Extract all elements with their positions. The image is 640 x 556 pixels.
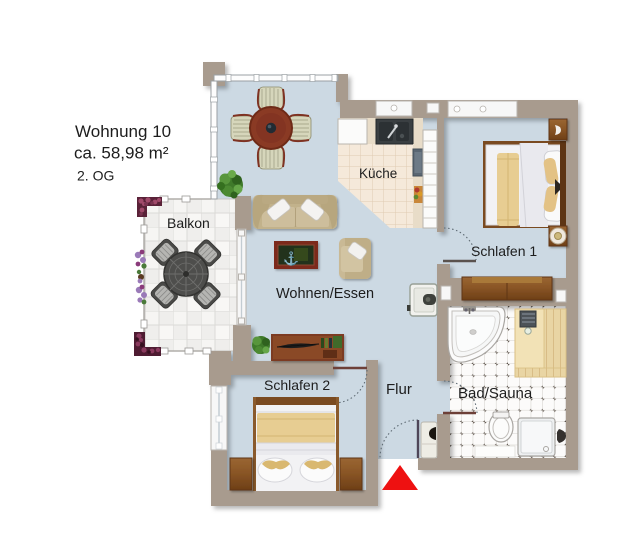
svg-text:Küche: Küche [359,166,397,181]
svg-text:Wohnung 10: Wohnung 10 [75,122,171,141]
svg-text:Schlafen 1: Schlafen 1 [471,243,537,259]
svg-text:ca. 58,98 m²: ca. 58,98 m² [74,144,169,163]
svg-text:2. OG: 2. OG [77,168,114,184]
svg-text:Wohnen/Essen: Wohnen/Essen [276,286,374,302]
svg-text:Balkon: Balkon [167,215,210,231]
svg-text:Schlafen 2: Schlafen 2 [264,377,330,393]
svg-text:Bad/Sauna: Bad/Sauna [458,385,533,402]
svg-text:Flur: Flur [386,381,412,398]
